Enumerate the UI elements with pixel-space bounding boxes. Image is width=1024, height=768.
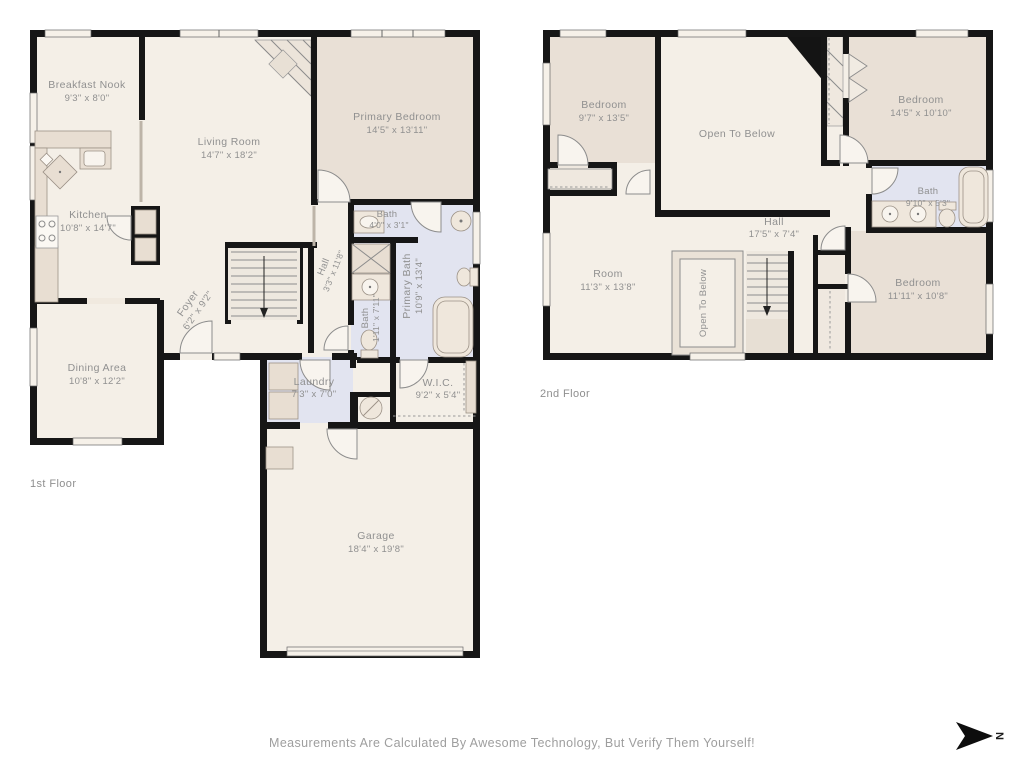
- north-arrow: N: [956, 722, 1005, 750]
- room-dims-primary-bath: 10'9" x 13'4": [414, 258, 425, 314]
- room-label-bedroom-tl: Bedroom: [581, 99, 626, 111]
- garage-shelf: [266, 447, 293, 469]
- room-dims-bedroom-tl: 9'7" x 13'5": [579, 113, 629, 124]
- floor2-plan: Bedroom 9'7" x 13'5" Open To Below Bedro…: [540, 30, 993, 400]
- room-label-open-to-below: Open To Below: [699, 128, 775, 140]
- room-label-laundry: Laundry: [294, 376, 335, 388]
- room-label-bath: Bath: [377, 209, 398, 220]
- room-label-room: Room: [593, 268, 623, 280]
- bedroom-tl-closet: [548, 169, 612, 189]
- north-label: N: [993, 732, 1005, 740]
- bathtub: [433, 297, 473, 357]
- floor-plan-drawing: Breakfast Nook 9'3" x 8'0" Living Room 1…: [0, 0, 1024, 768]
- room-label-wic: W.I.C.: [423, 377, 454, 389]
- room-label-garage: Garage: [357, 530, 394, 542]
- room-label-dining-area: Dining Area: [68, 362, 127, 374]
- room-label-primary-bath: Primary Bath: [401, 253, 413, 318]
- disclaimer-text: Measurements Are Calculated By Awesome T…: [269, 736, 755, 750]
- room-label-bath2f: Bath: [918, 186, 939, 197]
- room-dims-dining-area: 10'8" x 12'2": [69, 376, 125, 387]
- hall-closets: [818, 255, 845, 353]
- chase-hatch: [827, 36, 843, 126]
- floor1-stairs: [228, 248, 300, 320]
- toilet: [457, 268, 471, 286]
- dining-opening: [87, 298, 125, 304]
- room-dims-hall2: 17'5" x 7'4": [749, 229, 799, 240]
- room-dims-bedroom-tr: 14'5" x 10'10": [890, 108, 952, 119]
- room-dims-bath: 4'0" x 3'1": [369, 220, 408, 230]
- room-label-bedroom-br: Bedroom: [895, 277, 940, 289]
- floor2-stairs: [746, 251, 788, 353]
- room-dims-breakfast-nook: 9'3" x 8'0": [65, 93, 110, 104]
- room-dims-primary-bedroom: 14'5" x 13'11": [367, 125, 428, 136]
- room-dims-living-room: 14'7" x 18'2": [201, 150, 257, 161]
- room-label-kitchen: Kitchen: [69, 209, 107, 221]
- kitchen-sink: [84, 151, 105, 166]
- stove: [36, 216, 58, 248]
- room-dims-bath2f: 9'10" x 5'3": [906, 198, 950, 208]
- north-arrow-icon: [956, 722, 993, 750]
- room-label-primary-bedroom: Primary Bedroom: [353, 111, 441, 123]
- room-label-bedroom-tr: Bedroom: [898, 94, 943, 106]
- room-label-living-room: Living Room: [198, 136, 261, 148]
- garage-door: [287, 647, 463, 656]
- room-dims-wic: 9'2" x 5'4": [416, 390, 461, 401]
- floor1-plan: Breakfast Nook 9'3" x 8'0" Living Room 1…: [30, 30, 480, 658]
- room-dims-garage: 18'4" x 19'8": [348, 544, 404, 555]
- room-dims-kitchen: 10'8" x 14'7": [60, 223, 116, 234]
- floor1-caption: 1st Floor: [30, 478, 76, 490]
- room-label-hall2: Hall: [764, 216, 784, 228]
- floor2-caption: 2nd Floor: [540, 388, 590, 400]
- room-label-bath2: Bath: [360, 308, 371, 329]
- room-dims-laundry: 7'3" x 7'0": [292, 389, 337, 400]
- pantry-shelf: [135, 210, 156, 234]
- room-label-breakfast-nook: Breakfast Nook: [48, 79, 126, 91]
- toilet: [939, 209, 955, 227]
- room-dims-bath2: 1'11" x 7'11": [371, 294, 381, 342]
- room-label-open-to-below-2: Open To Below: [698, 269, 709, 337]
- closet-shelf: [135, 238, 156, 261]
- room-dims-room: 11'3" x 13'8": [580, 282, 635, 293]
- floor-plan-page: Breakfast Nook 9'3" x 8'0" Living Room 1…: [0, 0, 1024, 768]
- room-dims-bedroom-br: 11'11" x 10'8": [888, 291, 948, 302]
